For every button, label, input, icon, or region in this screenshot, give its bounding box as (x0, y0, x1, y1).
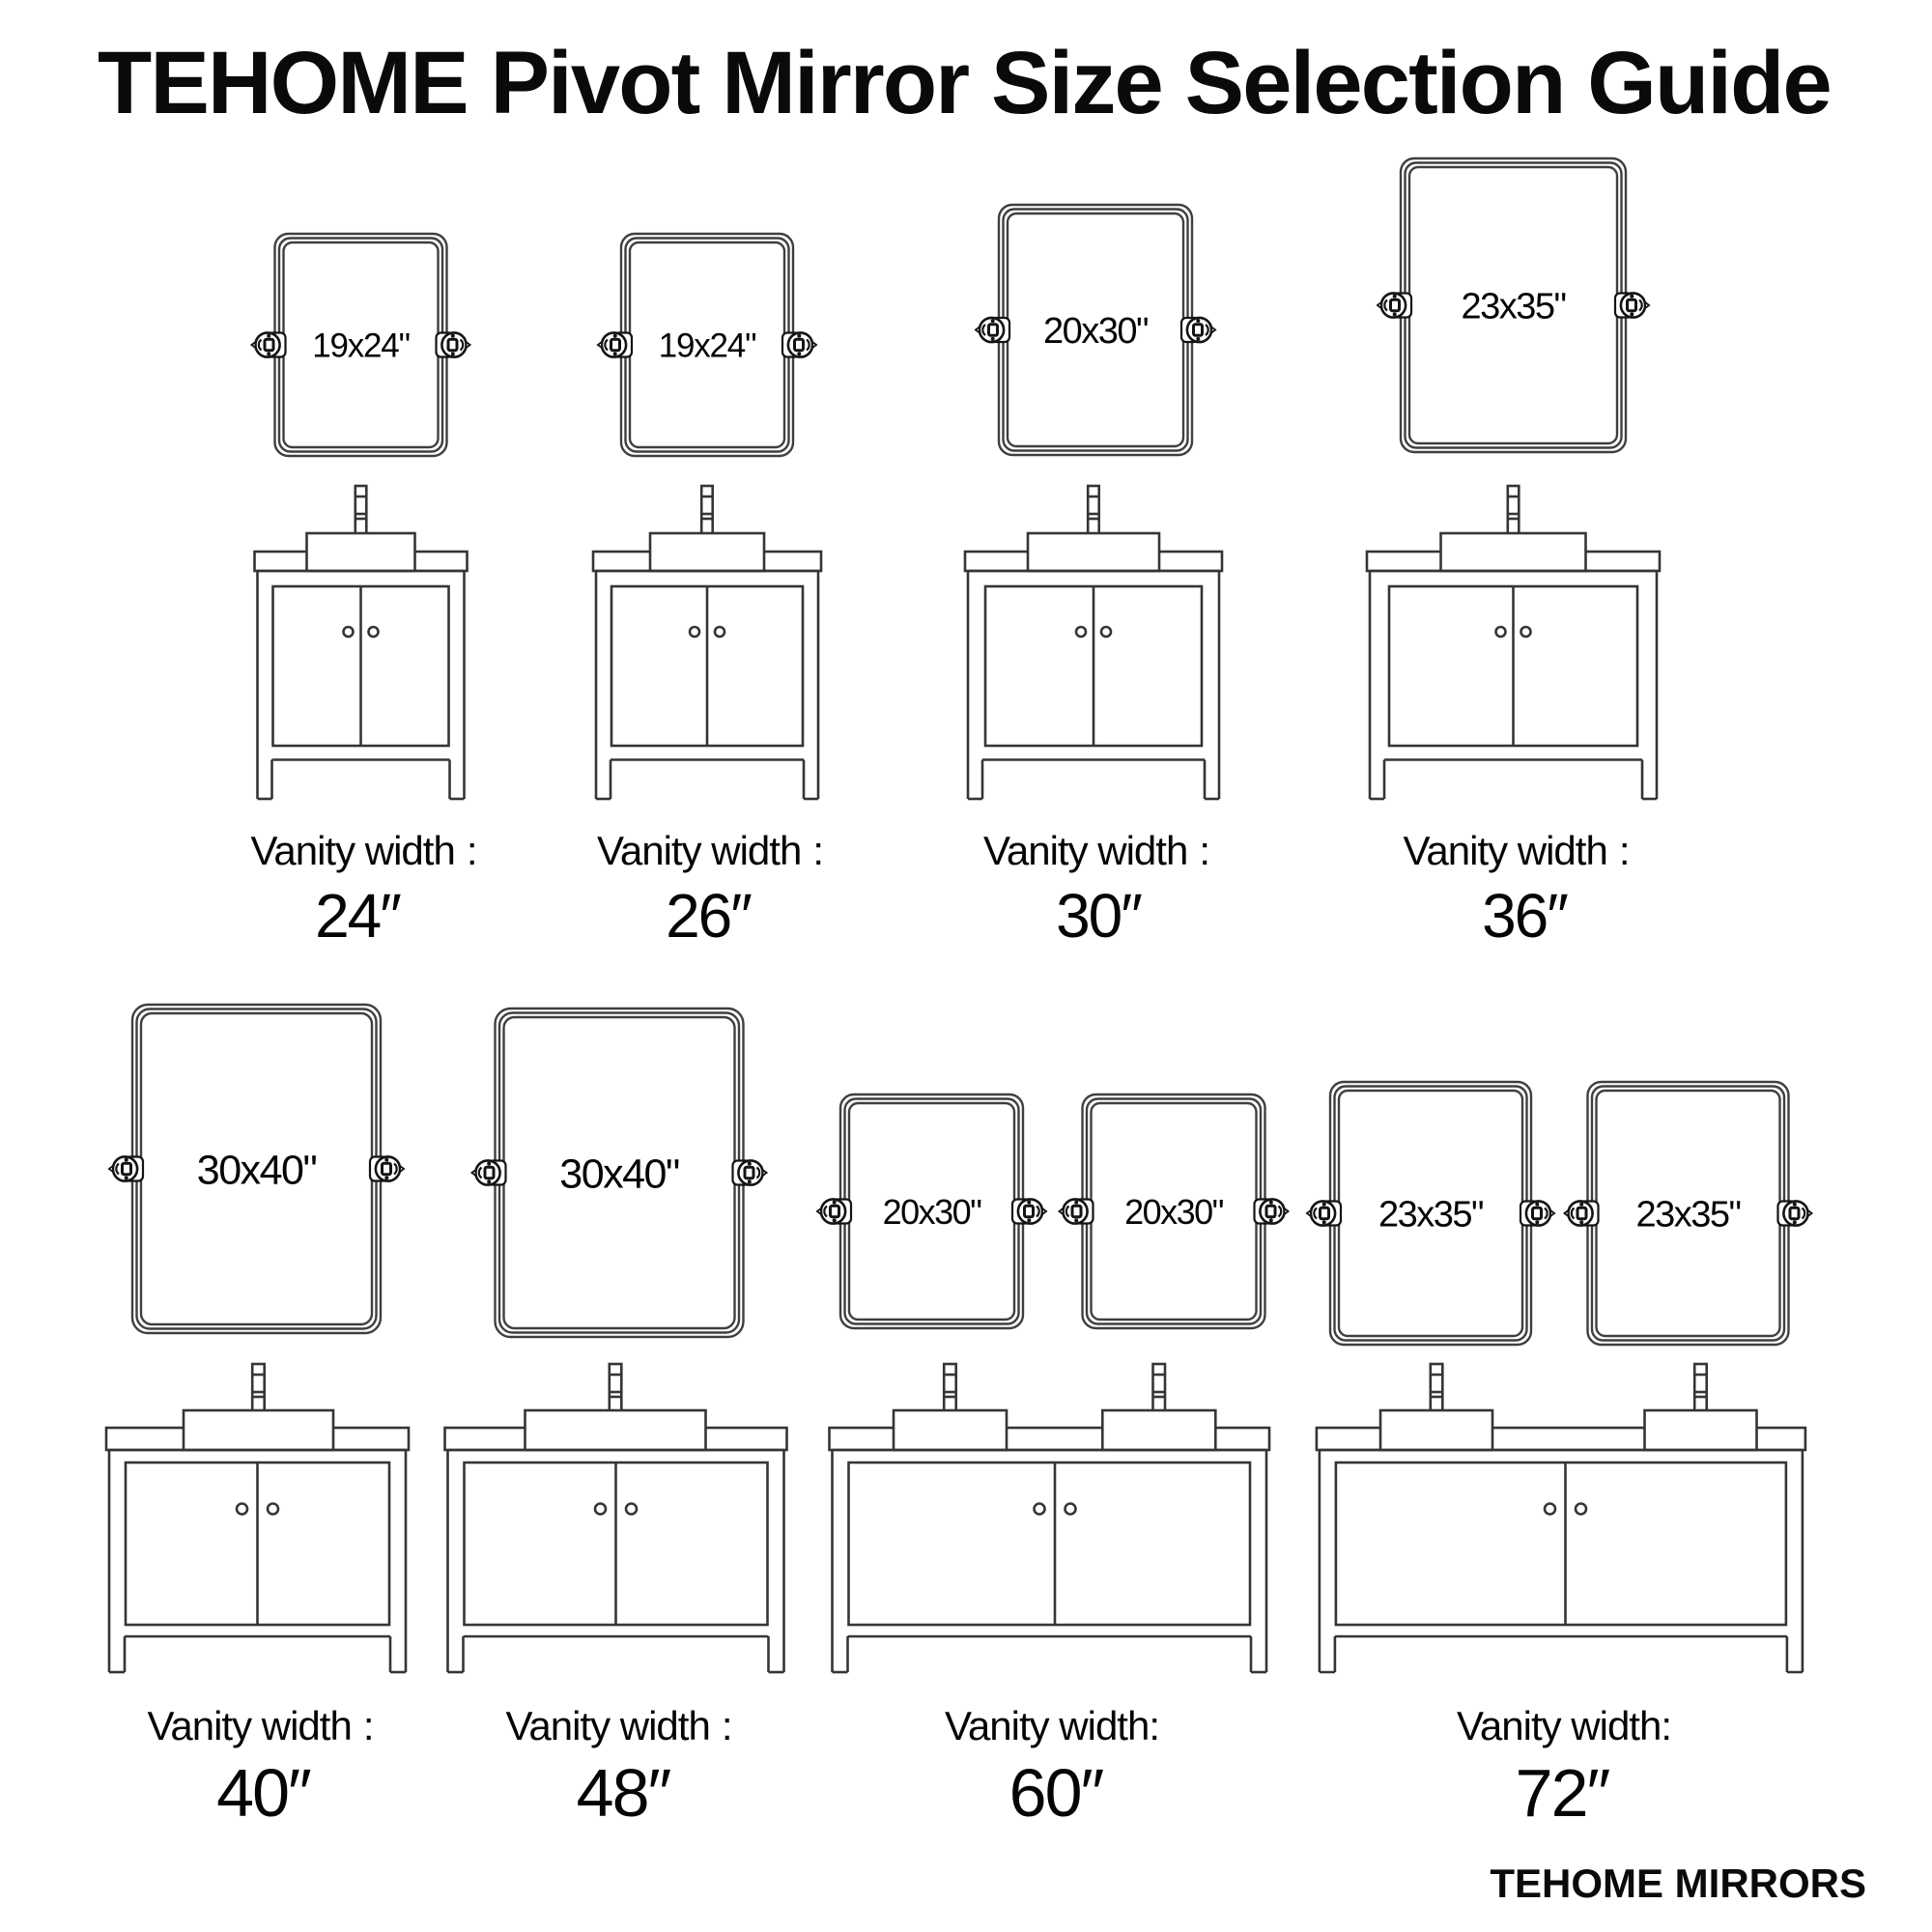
svg-text:20x30": 20x30" (883, 1192, 982, 1232)
svg-text:Vanity width:: Vanity width: (1457, 1703, 1671, 1748)
svg-text:Vanity width:: Vanity width: (983, 828, 1209, 873)
svg-text:30x40": 30x40" (559, 1151, 679, 1197)
svg-text:Vanity width:: Vanity width: (505, 1703, 731, 1748)
svg-text:48″: 48″ (577, 1755, 671, 1831)
svg-text:36″: 36″ (1482, 881, 1568, 951)
svg-text:30x40": 30x40" (197, 1147, 317, 1193)
svg-text:23x35": 23x35" (1635, 1195, 1740, 1236)
svg-text:20x30": 20x30" (1043, 311, 1148, 352)
svg-text:40″: 40″ (216, 1755, 311, 1831)
svg-text:19x24": 19x24" (312, 327, 410, 364)
svg-text:Vanity width:: Vanity width: (250, 828, 476, 873)
svg-text:Vanity width:: Vanity width: (147, 1703, 373, 1748)
svg-text:TEHOME MIRRORS: TEHOME MIRRORS (1490, 1861, 1866, 1906)
svg-text:19x24": 19x24" (659, 327, 756, 364)
svg-text:24″: 24″ (315, 881, 401, 951)
svg-text:TEHOME Pivot Mirror Size Selec: TEHOME Pivot Mirror Size Selection Guide (98, 34, 1831, 132)
svg-text:Vanity width:: Vanity width: (945, 1703, 1159, 1748)
svg-text:20x30": 20x30" (1124, 1192, 1224, 1232)
svg-text:23x35": 23x35" (1461, 287, 1565, 327)
svg-text:30″: 30″ (1056, 881, 1142, 951)
svg-text:26″: 26″ (666, 881, 752, 951)
svg-text:Vanity width:: Vanity width: (1403, 828, 1629, 873)
svg-text:60″: 60″ (1009, 1755, 1104, 1831)
svg-text:72″: 72″ (1516, 1755, 1610, 1831)
svg-text:Vanity width:: Vanity width: (597, 828, 823, 873)
svg-text:23x35": 23x35" (1378, 1195, 1483, 1236)
